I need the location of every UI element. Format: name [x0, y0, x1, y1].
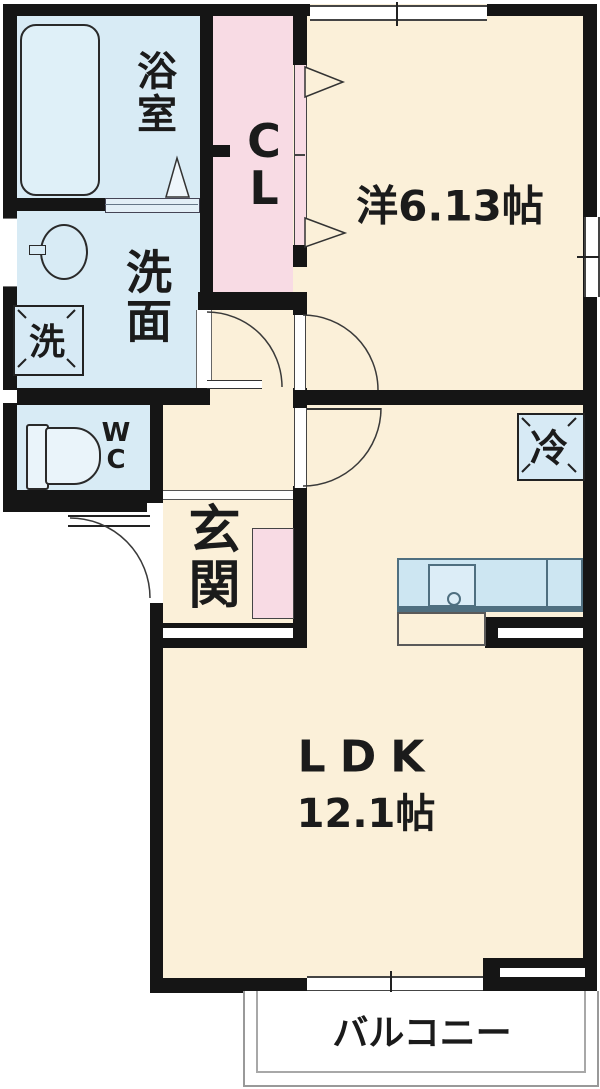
wall-ldk-left [150, 623, 163, 993]
entrance-label: 玄関 [172, 502, 247, 612]
fridge-label: 冷 [530, 418, 568, 473]
washer-label: 洗 [29, 313, 65, 365]
kitchen-lower-cabinet [397, 612, 486, 646]
closet-door-divider [294, 154, 305, 156]
bathroom-label: 浴室 [124, 50, 182, 136]
washbasin-faucet [29, 245, 46, 255]
wall-hall-top [293, 292, 307, 315]
wall-closet-right-top [293, 16, 307, 65]
front-door-leaf [68, 515, 150, 527]
kitchen-wall-stripe [498, 628, 583, 638]
ldk-door-opening [294, 408, 307, 488]
bathroom-door-divider [105, 204, 198, 205]
wall-closet-bottom [198, 292, 307, 310]
western-room-label: 洋6.13帖 [356, 173, 544, 234]
window-balcony-door [307, 976, 483, 992]
bottom-wall-window [500, 968, 585, 977]
wall-top-left [3, 4, 310, 16]
wc-window [3, 390, 17, 403]
shoe-cabinet [252, 528, 294, 619]
kitchen-counter [397, 558, 583, 612]
wc-label: WC [99, 420, 133, 473]
closet-label: CL [247, 118, 281, 212]
entrance-step-line [163, 490, 293, 500]
bathroom-door [105, 198, 200, 213]
wall-entrance-left [150, 603, 163, 623]
wall-hall-bottom [293, 486, 307, 648]
washroom-window [3, 218, 17, 287]
entrance-wall-stripe [163, 628, 293, 638]
washroom-door-leaf [207, 380, 262, 389]
western-room-door-leaf [294, 315, 306, 390]
kitchen-faucet [447, 592, 461, 606]
floor-plan: 浴室 洗面 洗 WC CL 洋6.13帖 玄関 冷 LDK 12.1帖 バルコニ… [0, 0, 600, 1089]
washroom-label: 洗面 [113, 248, 179, 346]
wall-closet-right-bottom [293, 245, 307, 267]
wall-room-ldk [293, 390, 583, 405]
balcony-label: バルコニー [332, 1004, 511, 1056]
window-right [584, 217, 600, 297]
washbasin [40, 224, 88, 280]
wall-stub [213, 145, 230, 157]
wall-bath-wash [3, 198, 105, 211]
wall-wc-right [150, 405, 163, 503]
wall-right [583, 4, 597, 993]
wall-wc-bottom [3, 490, 150, 512]
toilet-bowl [45, 427, 101, 485]
exterior-space [0, 512, 150, 1089]
ldk-size-label: 12.1帖 [297, 781, 436, 839]
wall-top-right [487, 4, 597, 16]
wall-wash-bottom [3, 388, 210, 405]
wall-bath-closet [200, 16, 213, 292]
kitchen-counter-divider [546, 560, 548, 608]
washroom-door-opening [196, 310, 212, 388]
window-top [310, 5, 487, 21]
bathtub [20, 24, 100, 196]
ldk-label: LDK [298, 732, 439, 783]
